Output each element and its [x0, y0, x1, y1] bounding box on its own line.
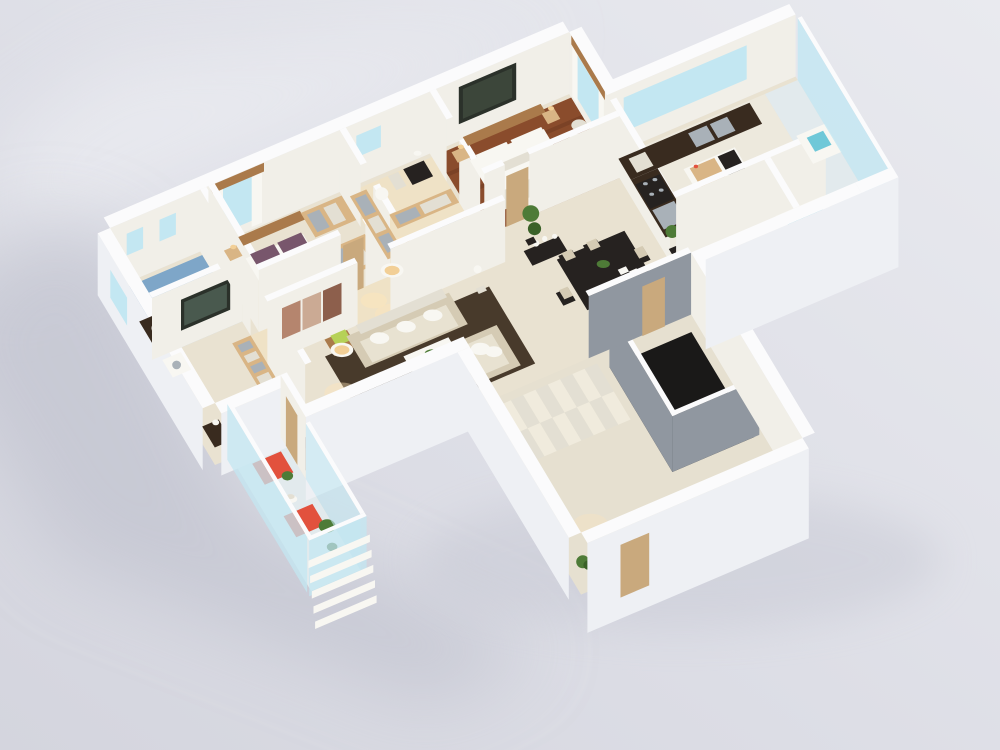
- counter-kitchen-left: [643, 182, 648, 185]
- sofa-main: [370, 332, 389, 344]
- floorplan-render: [0, 0, 1000, 750]
- door-stair-hall: [642, 277, 665, 336]
- plant-dining: [522, 205, 539, 222]
- toilet-closet: [375, 187, 388, 200]
- cabinet-closet: [414, 151, 422, 156]
- sofa-main: [396, 321, 415, 333]
- dining-table: [597, 260, 610, 268]
- nightstand-master-2: [548, 106, 554, 110]
- sofa-main: [423, 310, 442, 322]
- washer-roomB: [172, 361, 181, 370]
- glow-set: [361, 293, 387, 309]
- counter-kitchen-left: [649, 193, 654, 196]
- statue-living: [474, 265, 482, 273]
- counter-kitchen-left: [653, 178, 658, 181]
- island-kitchen: [694, 165, 698, 169]
- console-dining: [542, 236, 547, 242]
- facade-gallery-end: [862, 177, 899, 283]
- plant-dining: [528, 222, 541, 235]
- floorplan-svg: [0, 0, 1000, 750]
- counter-kitchen-left: [659, 189, 664, 192]
- armchair-2: [486, 346, 503, 357]
- nightstand-bedroom2: [230, 245, 236, 249]
- win-bedroom2: [252, 169, 262, 227]
- console-dining: [552, 234, 557, 239]
- lamp-living-2: [385, 266, 400, 275]
- lamp-living-1: [334, 345, 349, 354]
- plant-balcony-1: [282, 471, 293, 480]
- nightstand-master-1: [458, 145, 464, 149]
- sideboard-roomB: [212, 420, 219, 426]
